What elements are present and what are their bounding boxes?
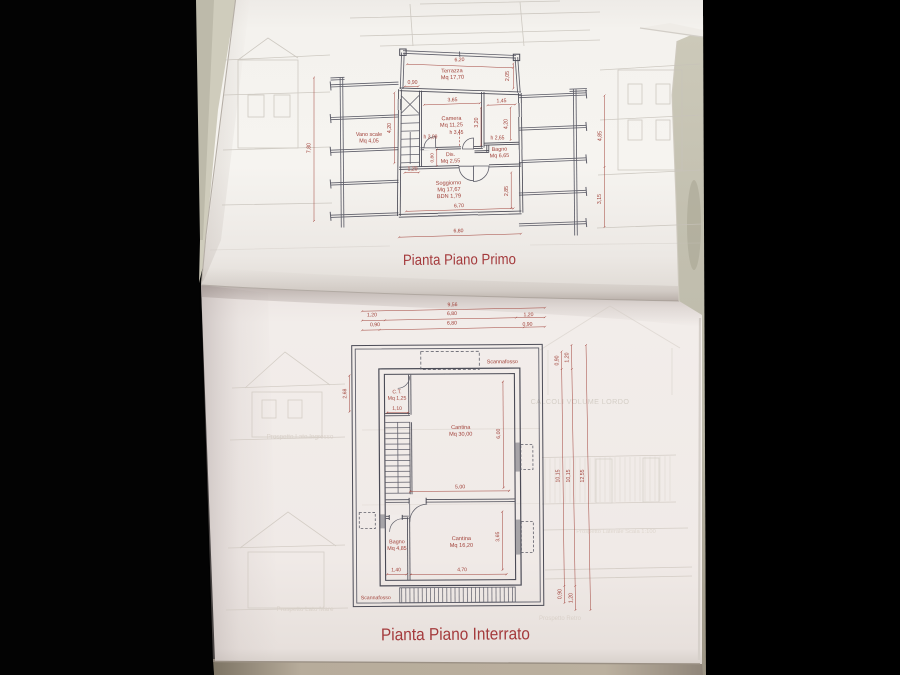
- svg-text:1,40: 1,40: [391, 567, 401, 573]
- svg-text:Prospetto Lato Ingresso: Prospetto Lato Ingresso: [267, 434, 334, 441]
- svg-text:4,70: 4,70: [457, 567, 467, 573]
- svg-text:Terrazza: Terrazza: [441, 68, 463, 75]
- svg-text:Bagno: Bagno: [492, 147, 508, 153]
- svg-text:12,55: 12,55: [580, 469, 586, 482]
- svg-text:Scannafosso: Scannafosso: [487, 359, 518, 365]
- svg-text:h 3,09: h 3,09: [424, 135, 438, 141]
- svg-text:6,20: 6,20: [454, 57, 464, 63]
- svg-text:6,80: 6,80: [453, 228, 463, 234]
- svg-text:Cantina: Cantina: [451, 425, 471, 431]
- svg-text:Mq 4,05: Mq 4,05: [359, 139, 378, 145]
- svg-text:1,20: 1,20: [367, 312, 377, 318]
- svg-text:Pianta Piano Interrato: Pianta Piano Interrato: [381, 623, 530, 644]
- svg-text:1,20: 1,20: [523, 312, 533, 318]
- svg-text:10,15: 10,15: [566, 469, 572, 482]
- svg-text:1,45: 1,45: [496, 98, 506, 104]
- svg-text:4,20: 4,20: [503, 119, 509, 129]
- svg-text:4,85: 4,85: [598, 131, 604, 141]
- svg-text:6,80: 6,80: [447, 311, 457, 317]
- svg-text:Pianta Piano Primo: Pianta Piano Primo: [403, 251, 516, 269]
- svg-text:3,65: 3,65: [495, 532, 501, 542]
- svg-text:1,20: 1,20: [568, 593, 574, 603]
- svg-text:Bagno: Bagno: [389, 539, 405, 545]
- svg-text:0,90: 0,90: [522, 322, 532, 328]
- svg-text:Mq 30,00: Mq 30,00: [449, 432, 472, 438]
- svg-text:BDN 1,79: BDN 1,79: [437, 193, 461, 200]
- svg-text:Mq 2,55: Mq 2,55: [441, 158, 461, 165]
- svg-text:Mq 1,25: Mq 1,25: [388, 396, 407, 402]
- svg-text:3,20: 3,20: [474, 117, 480, 127]
- svg-text:6,80: 6,80: [447, 321, 457, 327]
- svg-text:Mq 17,67: Mq 17,67: [437, 187, 460, 194]
- svg-text:Mq 6,65: Mq 6,65: [490, 153, 510, 160]
- svg-text:0,90: 0,90: [555, 355, 561, 365]
- svg-text:0,90: 0,90: [558, 589, 564, 599]
- svg-text:0,90: 0,90: [370, 322, 380, 328]
- svg-text:Mq 16,20: Mq 16,20: [450, 543, 473, 549]
- svg-text:Mq 4,85: Mq 4,85: [387, 546, 407, 552]
- svg-text:Prospetto Laterale Scala 1:100: Prospetto Laterale Scala 1:100: [576, 529, 656, 535]
- svg-text:Mq 17,70: Mq 17,70: [441, 75, 464, 82]
- svg-text:3,15: 3,15: [597, 194, 603, 204]
- svg-text:Mq 11,25: Mq 11,25: [440, 122, 463, 129]
- svg-text:0,80: 0,80: [430, 153, 436, 163]
- svg-text:h 2,65: h 2,65: [491, 136, 505, 142]
- svg-text:7,80: 7,80: [307, 143, 313, 153]
- svg-text:1,20: 1,20: [407, 166, 417, 172]
- svg-text:Dis.: Dis.: [446, 152, 455, 158]
- svg-text:9,56: 9,56: [447, 302, 457, 308]
- svg-text:1,10: 1,10: [392, 406, 402, 412]
- svg-text:Prospetto Retro: Prospetto Retro: [539, 616, 582, 622]
- svg-text:4,20: 4,20: [387, 123, 393, 133]
- svg-text:C.T.: C.T.: [392, 389, 401, 395]
- svg-text:2,68: 2,68: [342, 388, 348, 398]
- svg-text:h 3,45: h 3,45: [450, 130, 464, 136]
- svg-text:0,90: 0,90: [407, 80, 417, 86]
- svg-text:Vano scale: Vano scale: [356, 132, 382, 138]
- svg-text:Scannafosso: Scannafosso: [361, 595, 391, 601]
- svg-text:Soggiorno: Soggiorno: [436, 180, 462, 187]
- svg-text:Cantina: Cantina: [452, 536, 472, 542]
- svg-text:2,05: 2,05: [505, 71, 511, 81]
- svg-text:10,15: 10,15: [556, 469, 562, 482]
- svg-text:6,00: 6,00: [496, 429, 502, 439]
- svg-text:Prospetto Lato Mare: Prospetto Lato Mare: [276, 606, 334, 613]
- svg-text:2,85: 2,85: [504, 186, 510, 196]
- svg-text:1,20: 1,20: [565, 352, 571, 362]
- svg-text:Camera: Camera: [441, 116, 462, 123]
- svg-text:5,00: 5,00: [455, 484, 465, 490]
- svg-text:6,70: 6,70: [454, 203, 464, 209]
- svg-text:3,65: 3,65: [447, 97, 457, 103]
- svg-text:CALCOLI VOLUME LORDO: CALCOLI VOLUME LORDO: [531, 397, 630, 406]
